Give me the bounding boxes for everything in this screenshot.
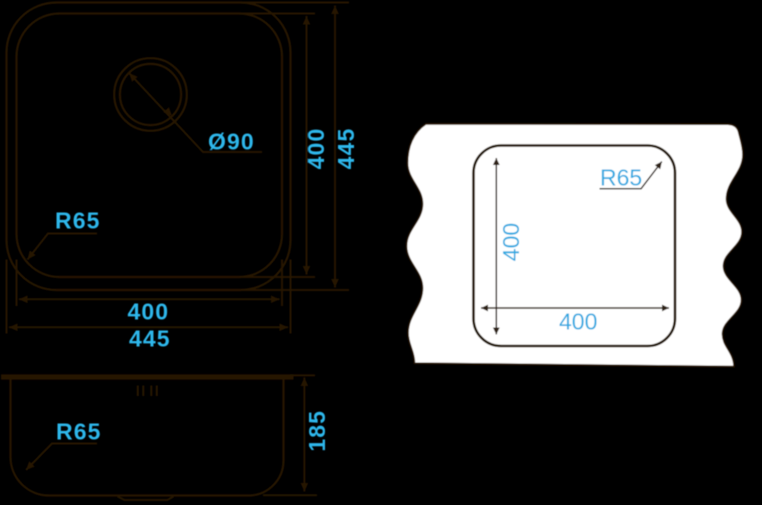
svg-text:400: 400 [128, 299, 170, 325]
svg-text:R65: R65 [55, 208, 101, 234]
svg-text:400: 400 [559, 308, 597, 334]
svg-text:445: 445 [333, 128, 359, 170]
svg-text:R65: R65 [56, 419, 102, 445]
svg-text:Ø90: Ø90 [208, 129, 255, 155]
svg-text:400: 400 [303, 128, 329, 170]
svg-text:445: 445 [129, 326, 171, 352]
svg-text:400: 400 [498, 223, 524, 261]
svg-text:185: 185 [304, 410, 330, 452]
svg-text:R65: R65 [600, 165, 642, 191]
